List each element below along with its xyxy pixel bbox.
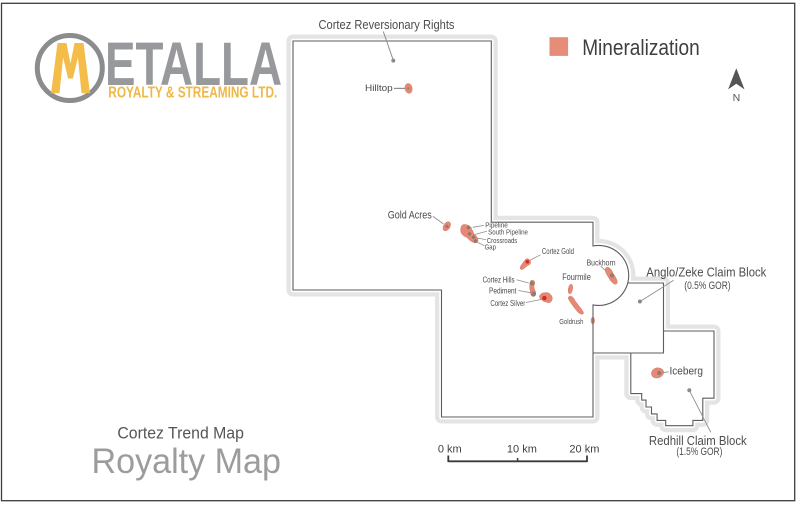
svg-text:20 km: 20 km	[569, 444, 599, 456]
svg-text:Anglo/Zeke Claim Block: Anglo/Zeke Claim Block	[646, 264, 766, 279]
svg-text:Iceberg: Iceberg	[670, 365, 704, 377]
svg-text:ROYALTY & STREAMING LTD.: ROYALTY & STREAMING LTD.	[108, 85, 277, 102]
svg-text:Fourmile: Fourmile	[562, 272, 591, 282]
svg-text:Mineralization: Mineralization	[582, 35, 700, 60]
svg-text:N: N	[733, 92, 741, 104]
svg-text:Cortez Gold: Cortez Gold	[542, 247, 574, 256]
svg-text:Cortez Reversionary Rights: Cortez Reversionary Rights	[319, 17, 455, 32]
svg-text:0 km: 0 km	[438, 444, 462, 456]
svg-text:Hilltop: Hilltop	[365, 82, 393, 93]
svg-text:Royalty Map: Royalty Map	[92, 442, 282, 481]
svg-text:Goldrush: Goldrush	[559, 317, 583, 326]
svg-text:10 km: 10 km	[507, 444, 537, 456]
svg-text:(1.5% GOR): (1.5% GOR)	[676, 446, 722, 458]
svg-text:Cortez Silver: Cortez Silver	[490, 299, 525, 308]
svg-text:Pediment: Pediment	[489, 287, 517, 296]
svg-text:Cortez Hills: Cortez Hills	[483, 276, 515, 285]
svg-text:Gap: Gap	[485, 243, 496, 252]
svg-text:Cortez Trend Map: Cortez Trend Map	[117, 424, 243, 442]
svg-text:Gold Acres: Gold Acres	[388, 210, 432, 222]
svg-text:(0.5% GOR): (0.5% GOR)	[684, 280, 730, 292]
svg-text:Buckhorn: Buckhorn	[587, 258, 616, 268]
